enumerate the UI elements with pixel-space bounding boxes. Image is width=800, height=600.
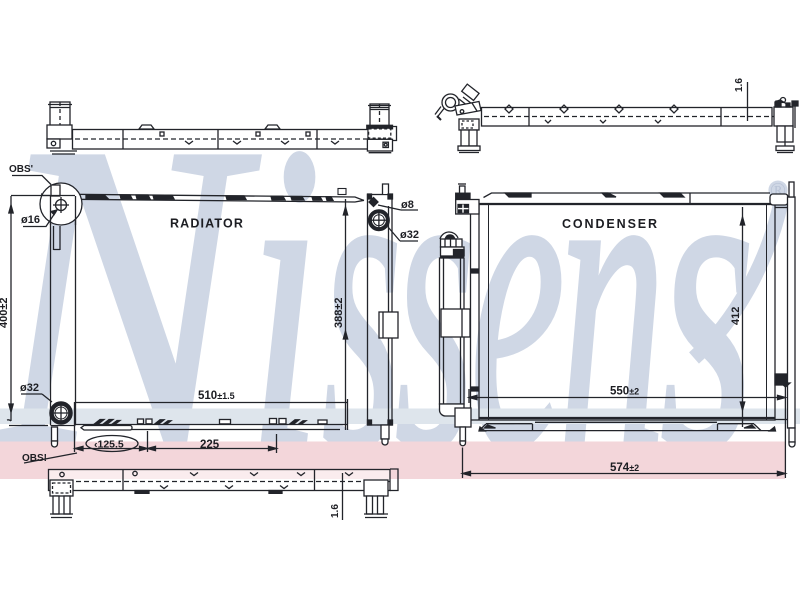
svg-text:RADIATOR: RADIATOR [170,217,244,231]
svg-text:412: 412 [730,307,742,325]
svg-text:OBS': OBS' [9,164,33,175]
svg-text:OBS!: OBS! [22,453,47,464]
svg-text:225: 225 [200,439,220,451]
svg-text:550±2: 550±2 [610,386,639,398]
svg-text:510±1.5: 510±1.5 [198,390,235,402]
svg-text:388±2: 388±2 [333,297,345,328]
svg-text:‹125.5: ‹125.5 [94,439,124,451]
svg-text:ø32: ø32 [400,229,419,241]
svg-text:1.6: 1.6 [330,504,341,518]
svg-text:1.6: 1.6 [734,78,745,92]
svg-text:ø32: ø32 [20,382,39,394]
svg-text:400±2: 400±2 [0,297,10,328]
svg-text:ø8: ø8 [401,199,414,211]
svg-text:CONDENSER: CONDENSER [562,217,659,231]
svg-text:ø16: ø16 [21,214,40,226]
svg-text:574±2: 574±2 [610,462,639,474]
